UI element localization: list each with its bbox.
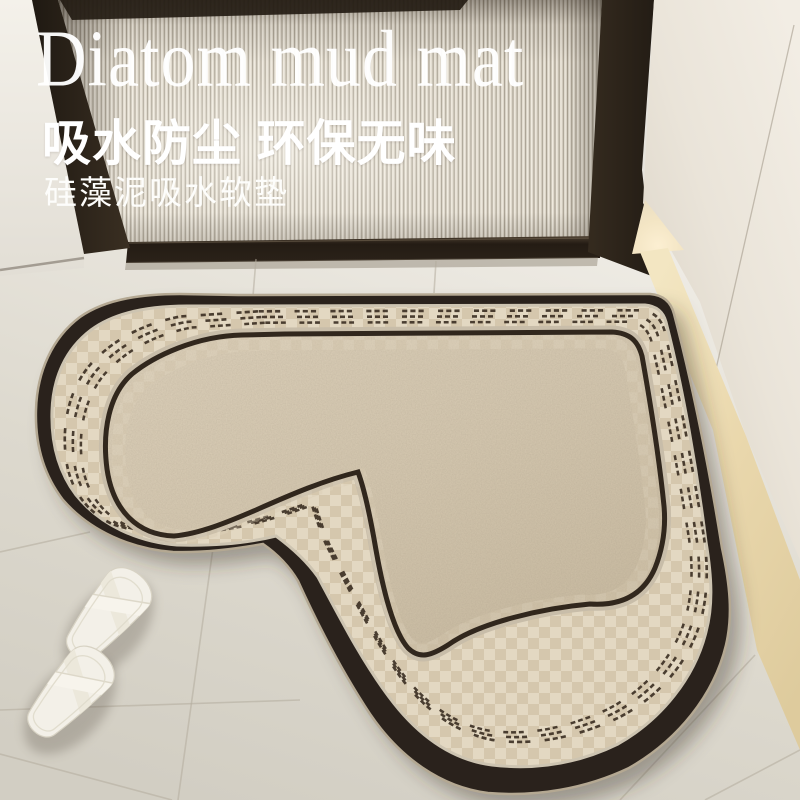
glass-door xyxy=(58,0,602,270)
product-scene: Diatom mud mat 吸水防尘 环保无味 硅藻泥吸水软垫 xyxy=(0,0,800,800)
scene-svg xyxy=(0,0,800,800)
